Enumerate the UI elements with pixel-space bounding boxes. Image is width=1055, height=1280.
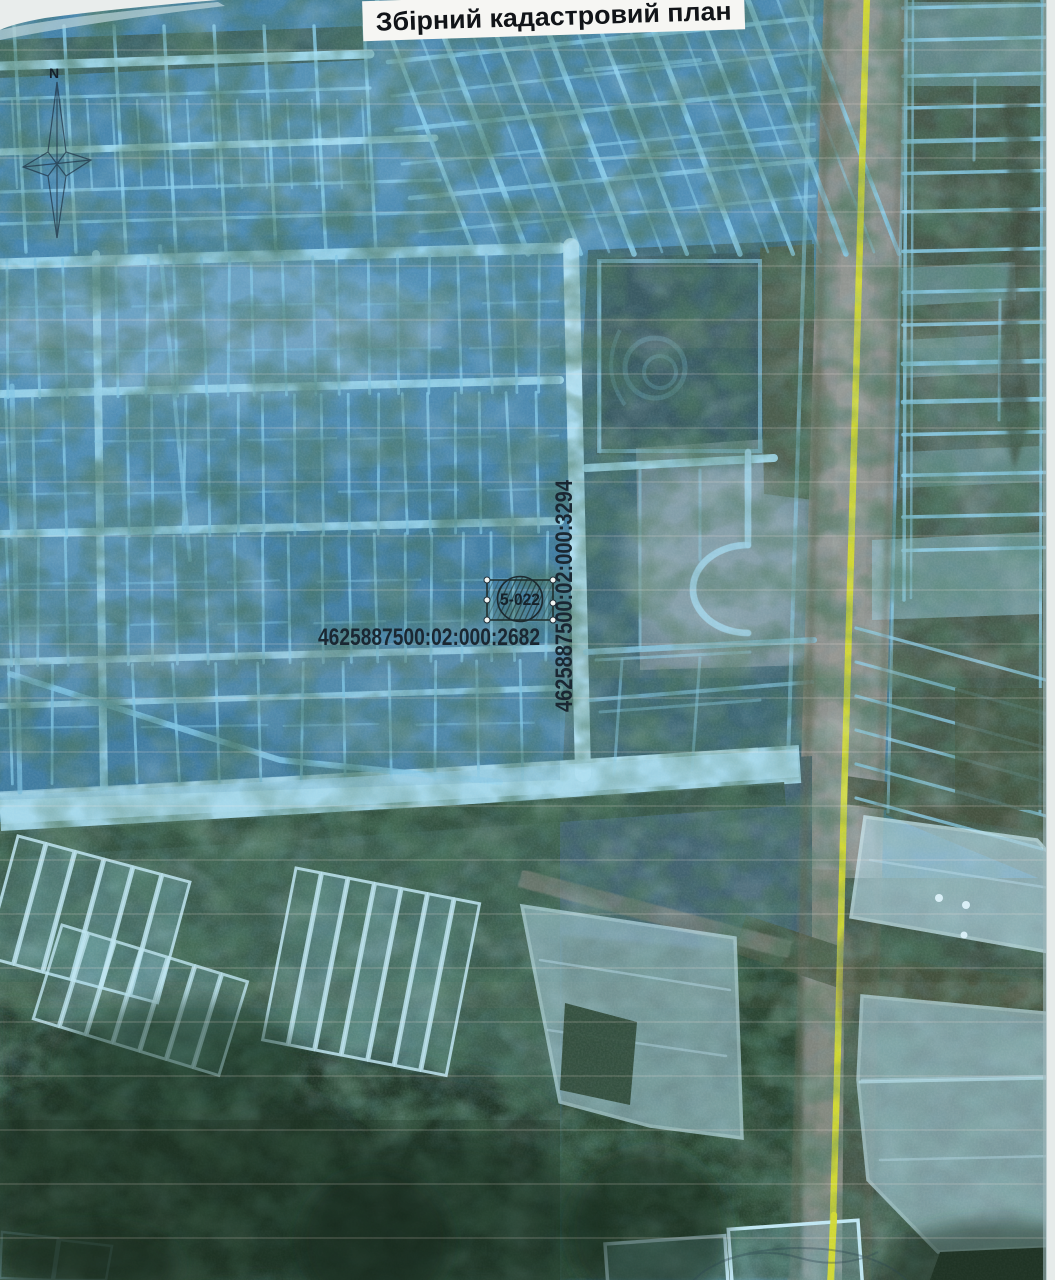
- svg-text:5-022: 5-022: [500, 590, 540, 609]
- svg-text:N: N: [49, 65, 59, 81]
- svg-text:4625887500:02:000:3294: 4625887500:02:000:3294: [551, 479, 578, 712]
- svg-text:4625887500:02:000:2682: 4625887500:02:000:2682: [318, 624, 540, 651]
